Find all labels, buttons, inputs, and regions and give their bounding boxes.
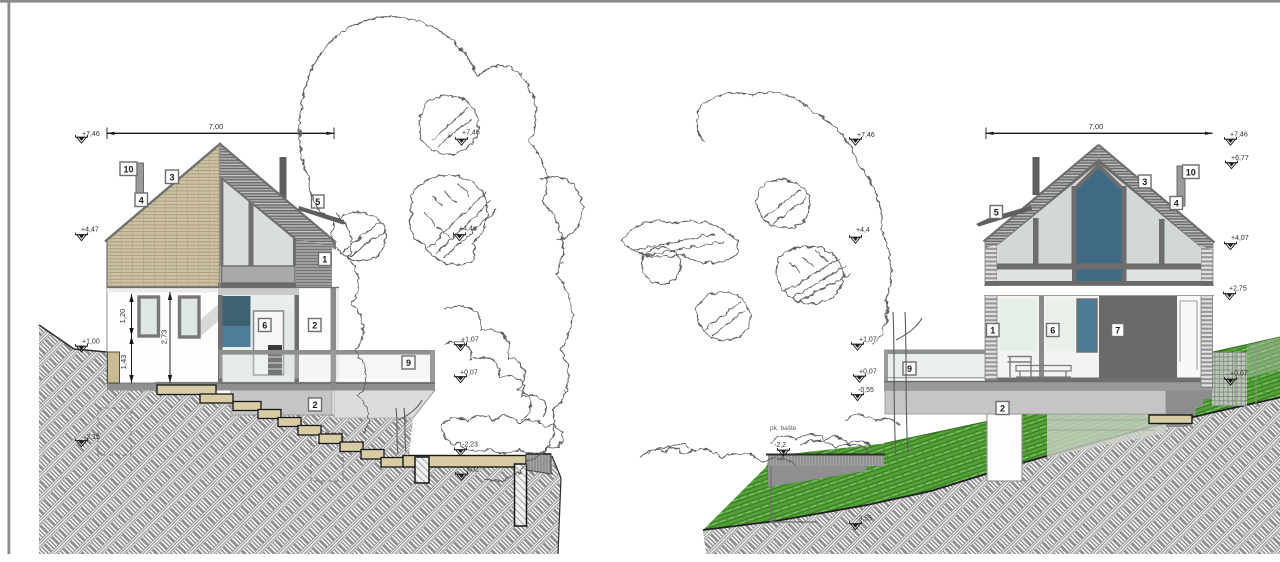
svg-text:+7,46: +7,46 xyxy=(1230,132,1248,139)
svg-text:1,20: 1,20 xyxy=(118,309,127,324)
svg-text:-2,15: -2,15 xyxy=(84,434,100,441)
svg-text:+0,07: +0,07 xyxy=(1230,371,1248,378)
svg-text:+6,77: +6,77 xyxy=(1231,155,1249,162)
svg-text:2,73: 2,73 xyxy=(160,330,169,345)
svg-text:9: 9 xyxy=(907,364,912,374)
svg-text:2: 2 xyxy=(312,321,317,331)
svg-text:+4,4: +4,4 xyxy=(856,227,870,234)
svg-text:6: 6 xyxy=(1050,326,1055,336)
svg-text:10: 10 xyxy=(123,165,133,175)
svg-text:2: 2 xyxy=(312,400,317,410)
svg-text:+7,46: +7,46 xyxy=(82,131,100,138)
svg-text:-0,55: -0,55 xyxy=(858,387,874,394)
svg-text:-2,2: -2,2 xyxy=(774,442,786,449)
svg-text:3: 3 xyxy=(1142,177,1147,187)
svg-text:-3,55: -3,55 xyxy=(856,516,872,523)
svg-text:+4,4: +4,4 xyxy=(459,226,473,233)
svg-text:7: 7 xyxy=(1115,326,1120,336)
svg-text:+1,00: +1,00 xyxy=(82,339,100,346)
svg-text:2: 2 xyxy=(1000,404,1005,414)
svg-text:3: 3 xyxy=(169,173,174,183)
svg-text:pk. bašte: pk. bašte xyxy=(770,425,797,432)
svg-text:+4,07: +4,07 xyxy=(1231,235,1249,242)
svg-text:5: 5 xyxy=(994,208,999,218)
svg-text:+0,07: +0,07 xyxy=(859,369,877,376)
svg-text:7,00: 7,00 xyxy=(1089,122,1104,131)
svg-text:+4,47: +4,47 xyxy=(81,227,99,234)
svg-text:+0,07: +0,07 xyxy=(460,370,478,377)
svg-text:-3,02: -3,02 xyxy=(463,467,479,474)
svg-text:10: 10 xyxy=(1186,168,1196,178)
svg-text:1,43: 1,43 xyxy=(119,355,128,370)
svg-text:6: 6 xyxy=(262,321,267,331)
svg-text:+7,46: +7,46 xyxy=(857,132,875,139)
svg-text:7,00: 7,00 xyxy=(209,122,224,131)
svg-text:1: 1 xyxy=(322,255,327,265)
svg-text:9: 9 xyxy=(406,358,411,368)
svg-text:4: 4 xyxy=(139,196,144,206)
svg-text:+2,75: +2,75 xyxy=(1229,286,1247,293)
svg-text:1: 1 xyxy=(990,326,995,336)
svg-text:4: 4 xyxy=(1174,199,1179,209)
